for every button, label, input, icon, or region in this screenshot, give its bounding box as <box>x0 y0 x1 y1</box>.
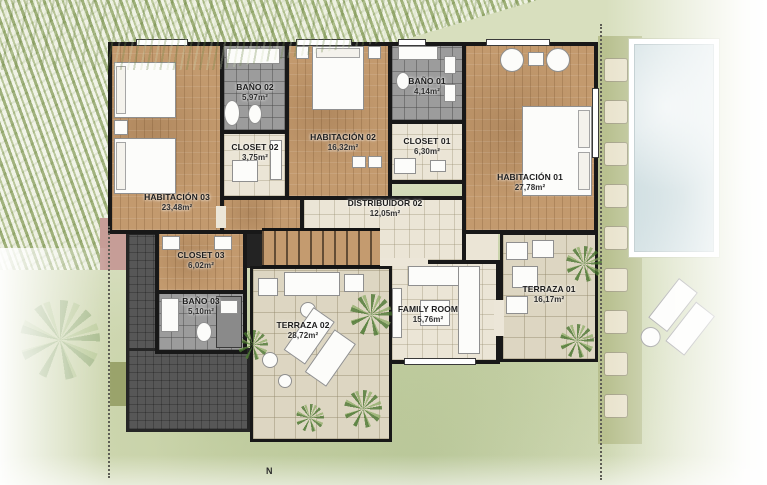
window <box>486 39 550 46</box>
room-name: CLOSET 03 <box>177 250 224 260</box>
room-name: TERRAZA 02 <box>276 320 329 330</box>
room-name: CLOSET 02 <box>231 142 278 152</box>
side-table-icon <box>528 52 544 66</box>
toilet-icon <box>248 104 262 124</box>
pillow-icon <box>116 142 126 190</box>
north-indicator: N <box>266 466 273 476</box>
patio-chair-icon <box>506 242 528 260</box>
room-area: 6,02m² <box>146 261 256 271</box>
room-area: 12,05m² <box>325 209 445 219</box>
room-area: 15,76m² <box>373 315 483 325</box>
palm-icon <box>296 404 324 432</box>
sofa-icon <box>284 272 340 296</box>
closet-shelf-icon <box>214 236 232 250</box>
window <box>398 39 426 46</box>
room-label-bano-02: BAÑO 02 5,97m² <box>200 82 310 103</box>
room-area: 23,48m² <box>122 203 232 213</box>
palm-icon <box>560 324 594 358</box>
room-area: 16,17m² <box>494 295 604 305</box>
stepping-stone <box>604 184 628 208</box>
room-name: TERRAZA 01 <box>522 284 575 294</box>
closet-shelf-icon <box>162 236 180 250</box>
stepping-stone <box>604 268 628 292</box>
patio-chair-icon <box>532 240 554 258</box>
window <box>136 39 188 46</box>
room-label-terraza-01: TERRAZA 01 16,17m² <box>494 284 604 305</box>
pillow-icon <box>116 66 126 114</box>
room-label-bano-03: BAÑO 03 5,10m² <box>146 296 256 317</box>
closet-shelf-icon <box>394 158 416 174</box>
property-boundary-left <box>108 226 110 478</box>
closet-shelf-icon <box>430 160 446 172</box>
sink-icon <box>444 56 456 74</box>
stepping-stone <box>604 310 628 334</box>
room-area: 6,30m² <box>372 147 482 157</box>
wardrobe-icon <box>368 156 382 168</box>
room-name: BAÑO 01 <box>408 76 446 86</box>
stepping-stone <box>604 394 628 418</box>
room-area: 28,72m² <box>248 331 358 341</box>
closet-island-icon <box>232 160 258 182</box>
room-label-closet-01: CLOSET 01 6,30m² <box>372 136 482 157</box>
pillow-icon <box>316 48 360 58</box>
room-name: DISTRIBUIDOR 02 <box>348 198 423 208</box>
shower-tray-icon <box>226 48 280 64</box>
room-name: FAMILY ROOM <box>398 304 458 314</box>
patio-chair-icon <box>344 274 364 292</box>
room-area: 3,75m² <box>200 153 310 163</box>
poolside-lounger-group <box>630 278 727 378</box>
room-area: 5,97m² <box>200 93 310 103</box>
room-label-distribuidor-02: DISTRIBUIDOR 02 12,05m² <box>325 198 445 219</box>
room-name: BAÑO 03 <box>182 296 220 306</box>
room-label-closet-03: CLOSET 03 6,02m² <box>146 250 256 271</box>
room-area: 27,78m² <box>475 183 585 193</box>
sink-icon <box>224 100 240 126</box>
floor-plan: HABITACIÓN 03 23,48m² BAÑO 02 5,97m² CLO… <box>0 0 767 485</box>
room-name: BAÑO 02 <box>236 82 274 92</box>
door-opening <box>380 258 428 266</box>
window <box>592 88 599 158</box>
nightstand-icon <box>114 120 128 135</box>
patio-dark-area-lower <box>126 348 250 432</box>
toilet-icon <box>196 322 212 342</box>
shower-tray-icon <box>398 46 438 60</box>
wardrobe-icon <box>352 156 366 168</box>
room-label-habitacion-03: HABITACIÓN 03 23,48m² <box>122 192 232 213</box>
palm-icon <box>20 300 100 380</box>
page-fade-bottom <box>0 455 767 485</box>
room-area: 5,10m² <box>146 307 256 317</box>
stool-icon <box>278 374 292 388</box>
room-name: HABITACIÓN 02 <box>310 132 376 142</box>
staircase <box>262 228 380 268</box>
stepping-stone <box>604 226 628 250</box>
nightstand-icon <box>296 46 309 59</box>
room-label-terraza-02: TERRAZA 02 28,72m² <box>248 320 358 341</box>
armchair-icon <box>500 48 524 72</box>
room-label-family-room: FAMILY ROOM 15,76m² <box>373 304 483 325</box>
door-opening <box>494 300 504 336</box>
property-boundary-right <box>600 24 602 480</box>
room-name: HABITACIÓN 03 <box>144 192 210 202</box>
pool-water <box>634 44 714 252</box>
nightstand-icon <box>368 46 381 59</box>
window <box>296 39 352 46</box>
stepping-stone <box>604 352 628 376</box>
patio-chair-icon <box>258 278 278 296</box>
window <box>404 358 476 365</box>
stepping-stone <box>604 58 628 82</box>
room-area: 4,14m² <box>372 87 482 97</box>
stepping-stone <box>604 142 628 166</box>
room-label-bano-01: BAÑO 01 4,14m² <box>372 76 482 97</box>
room-name: CLOSET 01 <box>403 136 450 146</box>
stepping-stone <box>604 100 628 124</box>
pool <box>628 38 720 258</box>
palm-icon <box>566 246 602 282</box>
armchair-icon <box>546 48 570 72</box>
pillow-icon <box>578 110 590 148</box>
room-label-habitacion-01: HABITACIÓN 01 27,78m² <box>475 172 585 193</box>
palm-icon <box>344 390 382 428</box>
room-name: HABITACIÓN 01 <box>497 172 563 182</box>
